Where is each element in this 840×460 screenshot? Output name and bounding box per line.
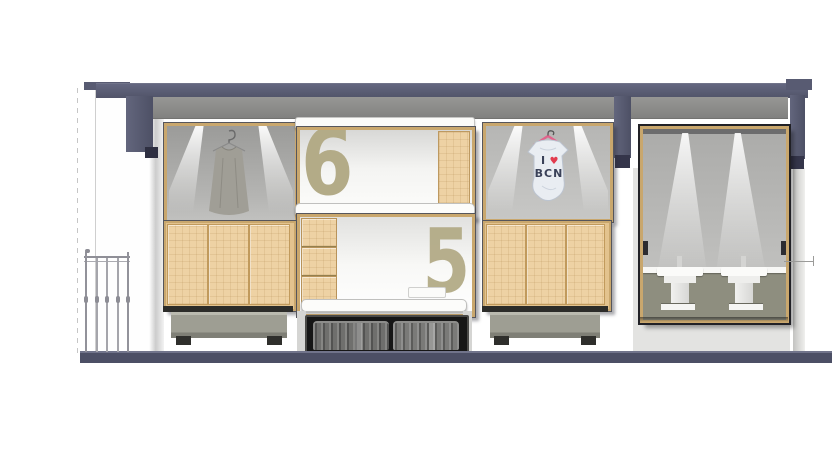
sink-faucet-icon	[677, 253, 682, 267]
bathroom-ceiling-shade	[643, 129, 786, 134]
beam-left-foot	[145, 147, 158, 158]
ceiling-soffit	[152, 97, 788, 119]
railing-baluster	[96, 258, 98, 352]
cabinet-foot	[176, 336, 191, 345]
cabinet-plinth	[490, 312, 600, 338]
sink-basin	[721, 267, 767, 276]
railing-finial-icon	[85, 249, 90, 253]
folded-luggage	[393, 321, 459, 350]
column-right	[790, 95, 805, 159]
railing-baluster	[106, 258, 108, 352]
elevation-drawing: 6 5 I ♥ BCN	[0, 0, 840, 460]
beam-left	[126, 96, 153, 152]
floor-slab	[80, 351, 832, 363]
dress-on-hanger	[189, 128, 269, 216]
bathroom-opening	[640, 126, 789, 323]
railing-knob-icon	[84, 296, 88, 303]
railing-baluster	[117, 258, 119, 352]
cabinet-door	[249, 224, 290, 305]
door-hinge-icon	[781, 241, 786, 255]
railing-knob-icon	[105, 296, 109, 303]
tshirt-on-hanger: I ♥ BCN	[512, 128, 582, 212]
folded-luggage	[313, 321, 389, 350]
bunk-six-number: 6	[301, 127, 353, 209]
hanger-hook-icon	[229, 131, 235, 144]
cabinet-door	[526, 224, 566, 305]
column-middle-cap	[615, 155, 630, 168]
ceiling-slab	[96, 83, 808, 98]
ceiling-lip-right	[786, 79, 812, 90]
bathroom-shelf	[729, 303, 763, 310]
sink-basin-step	[664, 276, 696, 283]
tshirt-print-heart-icon: ♥	[550, 156, 559, 167]
railing-knob-icon	[116, 296, 120, 303]
door-hinge-icon	[643, 241, 648, 255]
luggage-shelf	[305, 315, 469, 356]
section-boundary-dashed-line	[77, 88, 78, 354]
spotlight-beam	[651, 133, 711, 267]
cabinet-foot	[494, 336, 509, 345]
column-middle	[614, 96, 631, 158]
level-marker-tick	[813, 256, 814, 266]
cabinet-doors	[164, 221, 296, 311]
bunk-six-side-panel	[438, 131, 470, 211]
bathroom-under-shadow	[640, 317, 788, 322]
bunk-drawer	[301, 247, 337, 277]
bathroom-shelf	[661, 303, 695, 310]
railing-knob-icon	[126, 296, 130, 303]
spotlight-beam	[712, 133, 772, 267]
dress-body	[209, 147, 249, 215]
cabinet-foot	[267, 336, 282, 345]
bunk-five-pillow	[408, 287, 446, 298]
cabinet-door	[566, 224, 605, 305]
level-marker	[784, 261, 814, 262]
right-wall-strip	[793, 168, 805, 352]
cabinet-foot	[581, 336, 596, 345]
tshirt-display-case: I ♥ BCN	[483, 123, 613, 222]
sink-basin-step	[728, 276, 760, 283]
dress-display-case	[164, 123, 298, 224]
cabinet-door	[208, 224, 249, 305]
sink-basin	[657, 267, 703, 276]
railing-knob-icon	[95, 296, 99, 303]
balcony-railing	[84, 252, 130, 352]
bunk-drawer	[301, 218, 337, 248]
column-right-cap	[791, 156, 804, 169]
cabinet-plinth	[171, 312, 287, 338]
tshirt-print-letter: I	[541, 154, 545, 167]
cabinet-door	[167, 224, 208, 305]
sink-faucet-icon	[741, 253, 746, 267]
cabinet-doors	[483, 221, 611, 311]
cabinet-door	[486, 224, 526, 305]
bunk-five-mattress-edge	[301, 299, 467, 312]
tshirt-print-city: BCN	[535, 167, 564, 180]
